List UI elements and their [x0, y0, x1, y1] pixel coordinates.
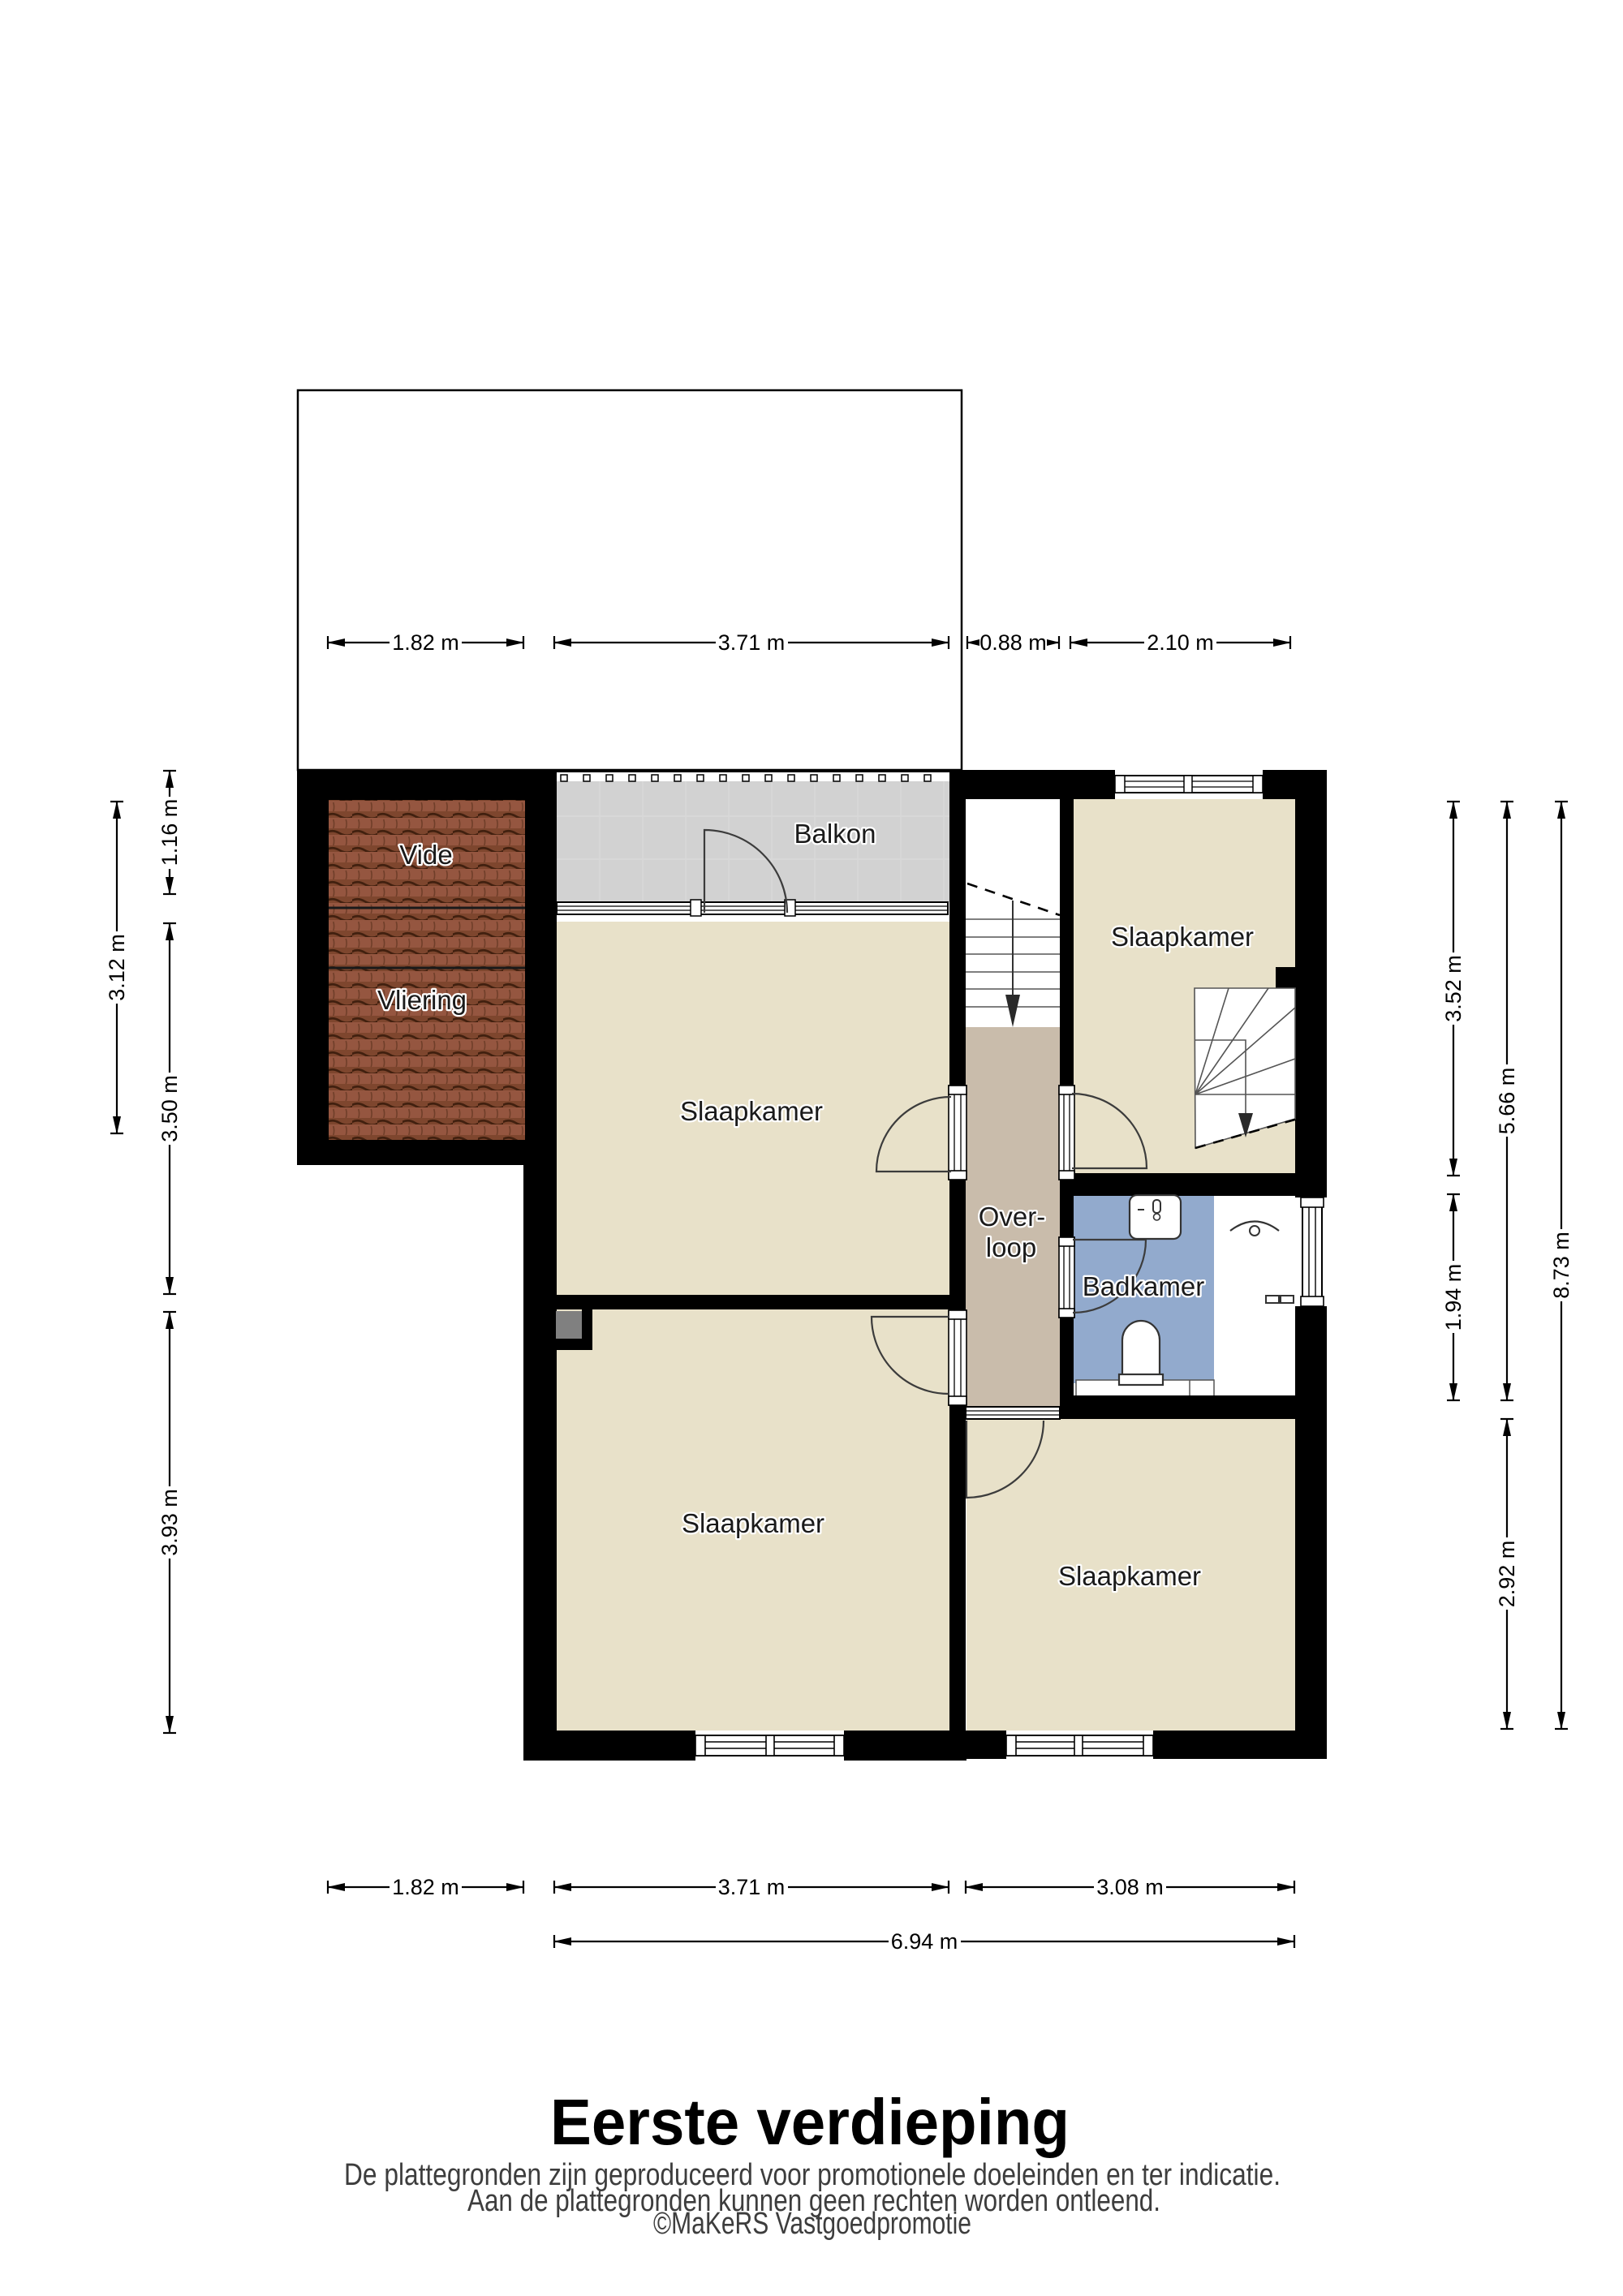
- svg-text:2.10 m: 2.10 m: [1147, 630, 1214, 655]
- svg-text:©MaKeRS Vastgoedpromotie: ©MaKeRS Vastgoedpromotie: [653, 2207, 971, 2241]
- svg-text:3.08 m: 3.08 m: [1096, 1875, 1164, 1899]
- svg-text:5.66 m: 5.66 m: [1495, 1068, 1519, 1135]
- svg-text:3.71 m: 3.71 m: [718, 1875, 786, 1899]
- svg-text:3.93 m: 3.93 m: [157, 1489, 182, 1556]
- svg-text:3.50 m: 3.50 m: [157, 1075, 182, 1142]
- svg-text:1.82 m: 1.82 m: [392, 630, 459, 655]
- svg-text:6.94 m: 6.94 m: [891, 1929, 958, 1954]
- svg-text:3.52 m: 3.52 m: [1441, 955, 1466, 1022]
- svg-text:1.16 m: 1.16 m: [157, 799, 182, 866]
- svg-text:Slaapkamer: Slaapkamer: [680, 1096, 823, 1126]
- svg-text:Over-: Over-: [979, 1202, 1046, 1232]
- svg-text:loop: loop: [986, 1232, 1036, 1262]
- svg-text:1.82 m: 1.82 m: [392, 1875, 459, 1899]
- svg-text:Eerste verdieping: Eerste verdieping: [550, 2086, 1070, 2158]
- svg-text:Slaapkamer: Slaapkamer: [1058, 1561, 1201, 1591]
- svg-text:Slaapkamer: Slaapkamer: [1111, 922, 1254, 952]
- svg-text:3.71 m: 3.71 m: [718, 630, 786, 655]
- svg-text:1.94 m: 1.94 m: [1441, 1264, 1466, 1331]
- svg-text:Slaapkamer: Slaapkamer: [682, 1508, 824, 1538]
- svg-text:3.12 m: 3.12 m: [105, 934, 129, 1001]
- svg-text:Vide: Vide: [399, 840, 452, 870]
- svg-text:0.88 m: 0.88 m: [979, 630, 1047, 655]
- svg-text:Badkamer: Badkamer: [1083, 1271, 1204, 1301]
- svg-text:Balkon: Balkon: [794, 819, 876, 849]
- svg-text:8.73 m: 8.73 m: [1549, 1232, 1573, 1299]
- svg-text:Vliering: Vliering: [377, 985, 467, 1015]
- svg-text:2.92 m: 2.92 m: [1495, 1541, 1519, 1608]
